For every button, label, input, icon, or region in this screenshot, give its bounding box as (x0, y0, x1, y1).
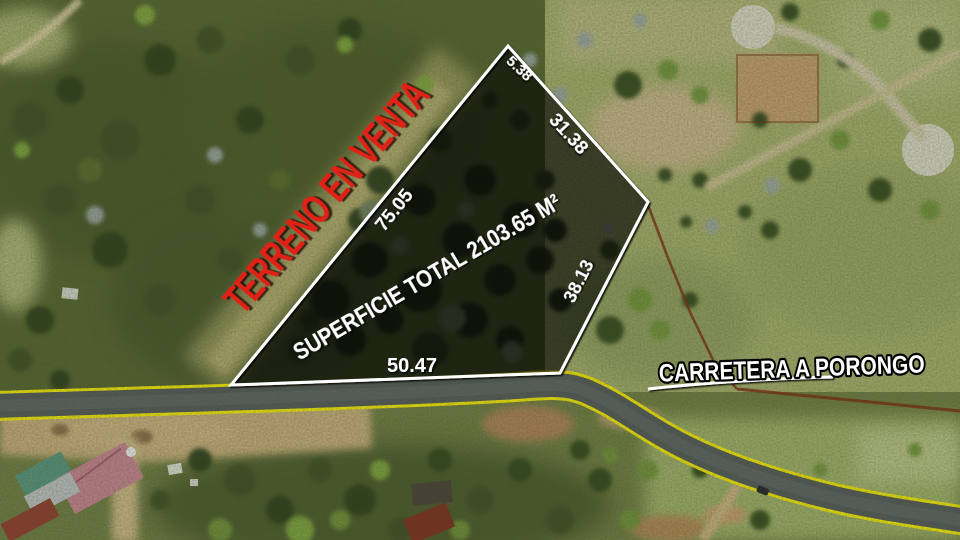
aerial-photo-canvas: 5.38 31.38 75.05 38.13 50.47 SUPERFICIE … (0, 0, 960, 540)
aerial-photo: 5.38 31.38 75.05 38.13 50.47 SUPERFICIE … (0, 0, 960, 540)
dimension-label-bottom: 50.47 (387, 355, 437, 377)
